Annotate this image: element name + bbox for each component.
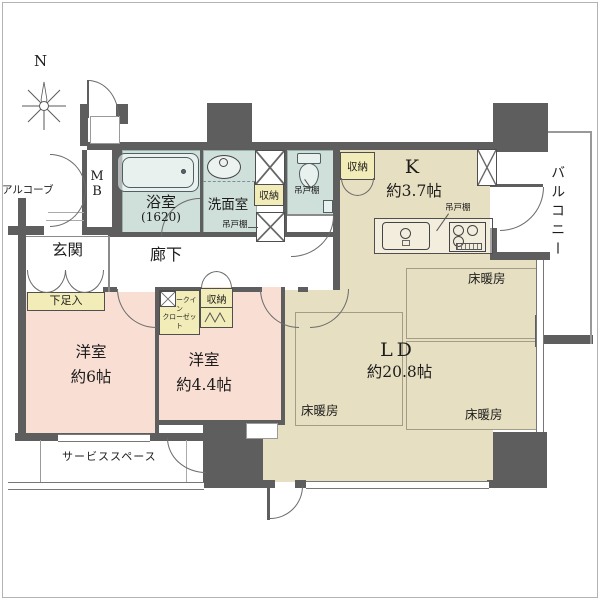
storage-kitchen: 収納 [340,152,375,180]
service-space-edge [8,482,204,490]
compass-north-label: N [34,53,47,70]
line-entrance-top [26,236,110,237]
cupboard-label-toilet: 吊戸棚 [294,187,320,197]
shaft-box-closet [160,291,176,307]
bath-size-label: (1620) [123,211,199,225]
stove-burner-1 [453,225,464,236]
cupboard-label-kitchen: 吊戸棚 [445,204,471,214]
toilet-panel-icon [323,200,333,213]
kitchen-faucet-icon [400,228,411,239]
stove-grill-icon [456,243,482,250]
door-leaf-mb-hatch [87,80,89,118]
living-size-label: 約20.8帖 [352,364,447,382]
kitchen-size-label: 約3.7帖 [374,183,454,201]
line-service-left [40,440,41,482]
floor-heating-label-bottomright: 床暖房 [465,408,503,422]
window-living-east [536,260,544,432]
storage-kitchen-label: 収納 [347,159,368,174]
leader-washroom-cupboard [248,227,258,228]
floor-plan: 下足入 収納 収納 収納 ウォークイン クローゼット [0,0,600,600]
floor-heating-label-topright: 床暖房 [468,272,506,286]
room-living-floor-c [263,425,493,482]
kitchen-label: K [392,157,432,179]
shoe-cabinet: 下足入 [27,292,105,311]
storage-washroom-label: 収納 [259,187,279,202]
compass-icon [16,78,72,138]
bathtub-drain-icon [181,169,186,174]
wall-balcony-bottom [540,335,593,344]
corridor-label: 廊下 [150,246,182,264]
balcony-label: バルコニー [549,165,565,260]
wall-corridor-bottom-4 [298,287,308,292]
wall-corridor-bottom-3 [232,287,262,292]
shaft-box-washroom-top [255,150,285,185]
storage-corridor-rod [200,307,233,328]
meter-box-label: M B [84,170,110,200]
wall-corridor-bottom-1 [103,287,117,292]
service-space-label: サービススペース [62,451,157,464]
pillar-bottom-right [493,432,547,488]
wall-alcove-stub [8,226,44,235]
storage-corridor: 収納 [200,288,233,309]
stove-burner-2 [467,225,478,236]
bedroom2-label: 洋室 約4.4帖 [158,348,250,398]
floor-heating-label-left: 床暖房 [301,404,339,418]
door-leaf-living-south [267,486,270,520]
pillar-top-right [493,103,548,152]
washroom-counter-edge [203,181,255,182]
line-balcony-right [590,131,592,344]
bedroom1-label: 洋室 約6帖 [46,340,136,390]
pillar-top-center [207,103,252,150]
hanger-rod-icon [203,311,230,324]
cupboard-label-washroom: 吊戸棚 [222,221,248,231]
window-living-south [306,481,489,489]
hanging-cupboard-box-washroom [256,212,285,242]
alcove-label: アルコーブ [2,184,54,196]
washbasin-faucet-icon [219,158,228,167]
line-entrance-right [108,237,110,292]
shaft-box-kitchen-east [477,149,497,186]
line-balcony-top [548,131,592,133]
window-bedroom1 [58,434,150,442]
bath-label: 浴室 [123,194,199,211]
kitchen-sink-drain [402,240,410,246]
living-label: LD [368,340,428,362]
entrance-label: 玄関 [40,242,95,260]
wall-bath-divider [200,150,203,233]
storage-corridor-label: 収納 [207,291,227,306]
shoe-cabinet-label: 下足入 [50,295,83,308]
wall-kitchen-west [333,147,340,290]
mb-upper-compartment [90,116,120,144]
washroom-label: 洗面室 [197,198,259,214]
pillar-notch [246,423,278,439]
door-leaf-balcony [497,184,543,187]
wall-living-northeast [490,252,550,260]
